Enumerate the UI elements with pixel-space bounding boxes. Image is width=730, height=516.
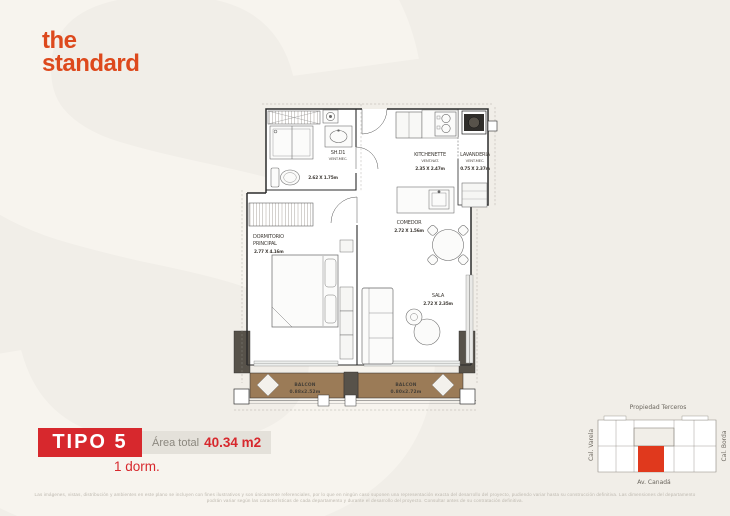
pillow xyxy=(325,295,336,323)
svg-text:SALA: SALA xyxy=(432,293,445,299)
area-label: Área total xyxy=(152,437,199,449)
key-map-svg: Propiedad Terceros Av. Canadá Cal. Varel… xyxy=(586,398,730,493)
map-label-bottom: Av. Canadá xyxy=(637,479,671,486)
map-label-top: Propiedad Terceros xyxy=(630,404,687,411)
svg-text:VENT.NAT.: VENT.NAT. xyxy=(421,158,439,163)
bedroom-closet xyxy=(249,203,313,226)
pillow xyxy=(325,259,336,287)
logo: the standard xyxy=(42,30,139,76)
side-table xyxy=(406,309,422,325)
laundry-unit xyxy=(462,183,487,207)
washbasin xyxy=(325,126,352,147)
type-label: TIPO 5 xyxy=(52,431,127,454)
disclaimer-line1: Las imágenes, vistas, distribución y amb… xyxy=(0,492,730,499)
disclaimer: Las imágenes, vistas, distribución y amb… xyxy=(0,492,730,506)
svg-text:0.75 X 2.37m: 0.75 X 2.37m xyxy=(460,166,490,172)
map-label-right: Cal. Borda xyxy=(721,430,728,461)
svg-text:BALCON: BALCON xyxy=(294,382,315,388)
shower xyxy=(270,126,313,159)
dresser xyxy=(340,287,353,311)
toilet-bowl xyxy=(281,170,300,185)
svg-text:2.35 X 2.47m: 2.35 X 2.47m xyxy=(415,166,445,172)
svg-text:2.72 X 2.35m: 2.72 X 2.35m xyxy=(423,301,453,307)
brochure-page: S the standard xyxy=(0,0,730,516)
sofa xyxy=(362,288,393,364)
disclaimer-line2: podrán variar según las características … xyxy=(0,498,730,505)
svg-text:COMEDOR: COMEDOR xyxy=(397,220,422,226)
dresser xyxy=(340,335,353,359)
map-label-left: Cal. Varela xyxy=(588,429,595,461)
floor-plan-svg: SH.D1 VENT.MEC. 2.62 X 1.75m KITCHENETTE… xyxy=(226,95,516,415)
svg-text:VENT.MEC.: VENT.MEC. xyxy=(466,158,485,163)
dresser xyxy=(340,311,353,335)
nightstand xyxy=(340,240,353,252)
type-badge: TIPO 5 xyxy=(38,428,142,457)
counter xyxy=(422,110,458,138)
svg-text:BALCON: BALCON xyxy=(395,382,416,388)
floor-plan: SH.D1 VENT.MEC. 2.62 X 1.75m KITCHENETTE… xyxy=(226,95,516,415)
svg-text:2.72 X 1.56m: 2.72 X 1.56m xyxy=(394,228,424,234)
bedrooms-label: 1 dorm. xyxy=(114,459,160,474)
svg-text:PRINCIPAL: PRINCIPAL xyxy=(253,241,277,247)
highlighted-unit xyxy=(638,446,664,472)
toilet-tank xyxy=(271,168,279,187)
vent-duct xyxy=(488,121,497,131)
svg-text:0.88x2.52m: 0.88x2.52m xyxy=(289,389,320,395)
svg-text:DORMITORIO: DORMITORIO xyxy=(253,234,284,240)
svg-text:2.62 X 1.75m: 2.62 X 1.75m xyxy=(308,175,338,181)
key-map: Propiedad Terceros Av. Canadá Cal. Varel… xyxy=(586,398,730,493)
dining-furniture xyxy=(427,224,470,266)
svg-text:0.80x2.72m: 0.80x2.72m xyxy=(390,389,421,395)
area-value: 40.34 m2 xyxy=(204,435,261,450)
dining-table xyxy=(433,230,464,261)
svg-text:2.77 X 4.16m: 2.77 X 4.16m xyxy=(254,249,284,255)
logo-line2: standard xyxy=(42,53,139,76)
svg-text:VENT.MEC.: VENT.MEC. xyxy=(329,156,348,161)
area-box: Área total 40.34 m2 xyxy=(142,431,271,454)
